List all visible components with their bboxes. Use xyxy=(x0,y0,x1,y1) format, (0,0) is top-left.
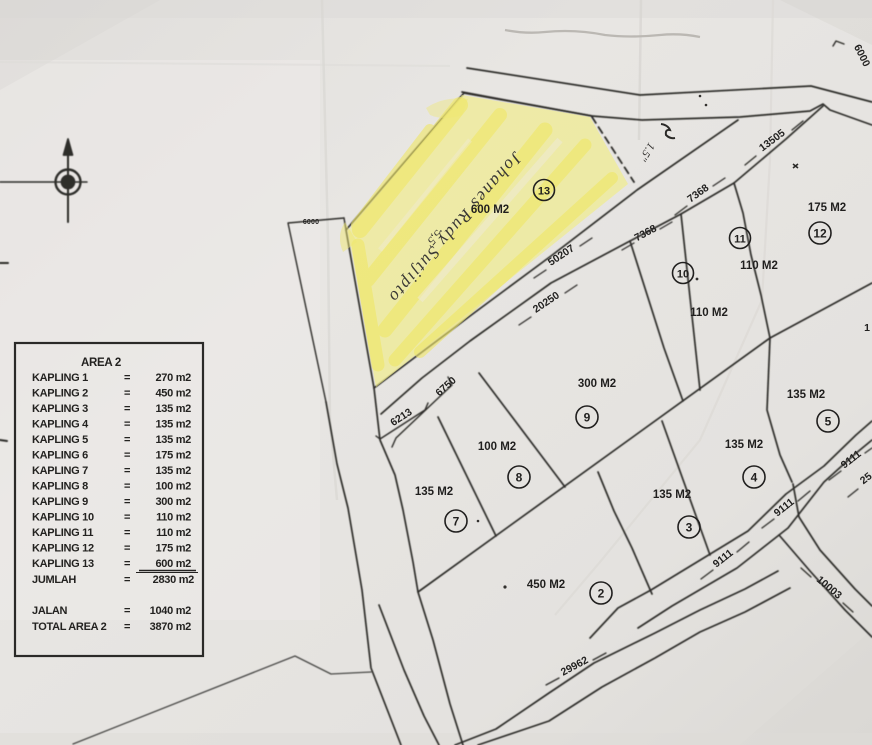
svg-text:7: 7 xyxy=(453,515,460,529)
svg-text:3870 m2: 3870 m2 xyxy=(150,621,192,633)
svg-text:110 m2: 110 m2 xyxy=(156,527,191,539)
svg-text:12: 12 xyxy=(813,227,827,241)
svg-text:450 M2: 450 M2 xyxy=(527,579,565,591)
svg-text:=: = xyxy=(124,496,130,508)
svg-text:10: 10 xyxy=(677,269,689,281)
svg-text:100 M2: 100 M2 xyxy=(478,441,516,453)
svg-text:=: = xyxy=(124,419,130,431)
svg-text:KAPLING 8: KAPLING 8 xyxy=(32,481,88,493)
svg-text:1: 1 xyxy=(864,322,870,334)
svg-text:KAPLING 12: KAPLING 12 xyxy=(32,543,94,555)
svg-text:600 m2: 600 m2 xyxy=(155,558,191,570)
svg-text:110 M2: 110 M2 xyxy=(740,260,778,272)
svg-text:11: 11 xyxy=(734,234,746,246)
svg-text:100 m2: 100 m2 xyxy=(155,481,191,493)
svg-text:KAPLING 11: KAPLING 11 xyxy=(32,527,93,539)
svg-text:6000: 6000 xyxy=(303,219,319,226)
svg-text:=: = xyxy=(124,527,130,539)
svg-text:=: = xyxy=(124,574,130,586)
svg-text:KAPLING 9: KAPLING 9 xyxy=(32,496,88,508)
svg-text:=: = xyxy=(124,558,130,570)
svg-text:135 M2: 135 M2 xyxy=(415,486,453,498)
svg-text:175 M2: 175 M2 xyxy=(808,202,846,214)
svg-text:KAPLING 3: KAPLING 3 xyxy=(32,403,88,415)
svg-text:=: = xyxy=(124,388,130,400)
svg-text:110 m2: 110 m2 xyxy=(156,512,191,524)
svg-text:135 M2: 135 M2 xyxy=(653,489,691,501)
svg-text:450 m2: 450 m2 xyxy=(155,388,191,400)
svg-text:KAPLING 13: KAPLING 13 xyxy=(32,558,94,570)
svg-text:JALAN: JALAN xyxy=(32,605,68,617)
svg-text:8: 8 xyxy=(516,471,523,485)
svg-text:3: 3 xyxy=(686,521,693,535)
svg-text:=: = xyxy=(124,481,130,493)
svg-text:=: = xyxy=(124,403,130,415)
svg-text:2830 m2: 2830 m2 xyxy=(153,574,195,586)
svg-text:=: = xyxy=(124,621,130,633)
svg-text:=: = xyxy=(124,450,130,462)
svg-text:KAPLING 4: KAPLING 4 xyxy=(32,419,89,431)
svg-text:=: = xyxy=(124,605,130,617)
svg-text:KAPLING 2: KAPLING 2 xyxy=(32,388,88,400)
svg-text:300 M2: 300 M2 xyxy=(578,378,616,390)
svg-text:300 m2: 300 m2 xyxy=(155,496,191,508)
svg-text:135 M2: 135 M2 xyxy=(725,439,763,451)
svg-text:175 m2: 175 m2 xyxy=(155,450,191,462)
svg-text:AREA 2: AREA 2 xyxy=(81,357,121,369)
svg-text:=: = xyxy=(124,434,130,446)
svg-text:=: = xyxy=(124,372,130,384)
svg-text:=: = xyxy=(124,543,130,555)
svg-text:4: 4 xyxy=(751,471,758,485)
svg-text:1040 m2: 1040 m2 xyxy=(150,605,192,617)
svg-text:110 M2: 110 M2 xyxy=(690,307,728,319)
svg-text:9: 9 xyxy=(584,411,591,425)
svg-text:KAPLING 1: KAPLING 1 xyxy=(32,372,88,384)
svg-text:13: 13 xyxy=(538,186,550,198)
svg-text:KAPLING 6: KAPLING 6 xyxy=(32,450,88,462)
svg-text:2: 2 xyxy=(598,587,605,601)
svg-text:135 m2: 135 m2 xyxy=(155,403,191,415)
svg-text:270 m2: 270 m2 xyxy=(155,372,191,384)
svg-text:KAPLING 10: KAPLING 10 xyxy=(32,512,94,524)
svg-text:KAPLING 5: KAPLING 5 xyxy=(32,434,88,446)
svg-text:175 m2: 175 m2 xyxy=(155,543,191,555)
svg-text:5: 5 xyxy=(825,415,832,429)
svg-text:=: = xyxy=(124,512,130,524)
svg-text:135 m2: 135 m2 xyxy=(155,434,191,446)
svg-text:=: = xyxy=(124,465,130,477)
svg-text:JUMLAH: JUMLAH xyxy=(32,574,76,586)
svg-text:135 m2: 135 m2 xyxy=(155,419,191,431)
svg-text:KAPLING 7: KAPLING 7 xyxy=(32,465,88,477)
svg-text:135 m2: 135 m2 xyxy=(155,465,191,477)
svg-text:TOTAL AREA 2: TOTAL AREA 2 xyxy=(32,621,107,633)
svg-text:135 M2: 135 M2 xyxy=(787,389,825,401)
